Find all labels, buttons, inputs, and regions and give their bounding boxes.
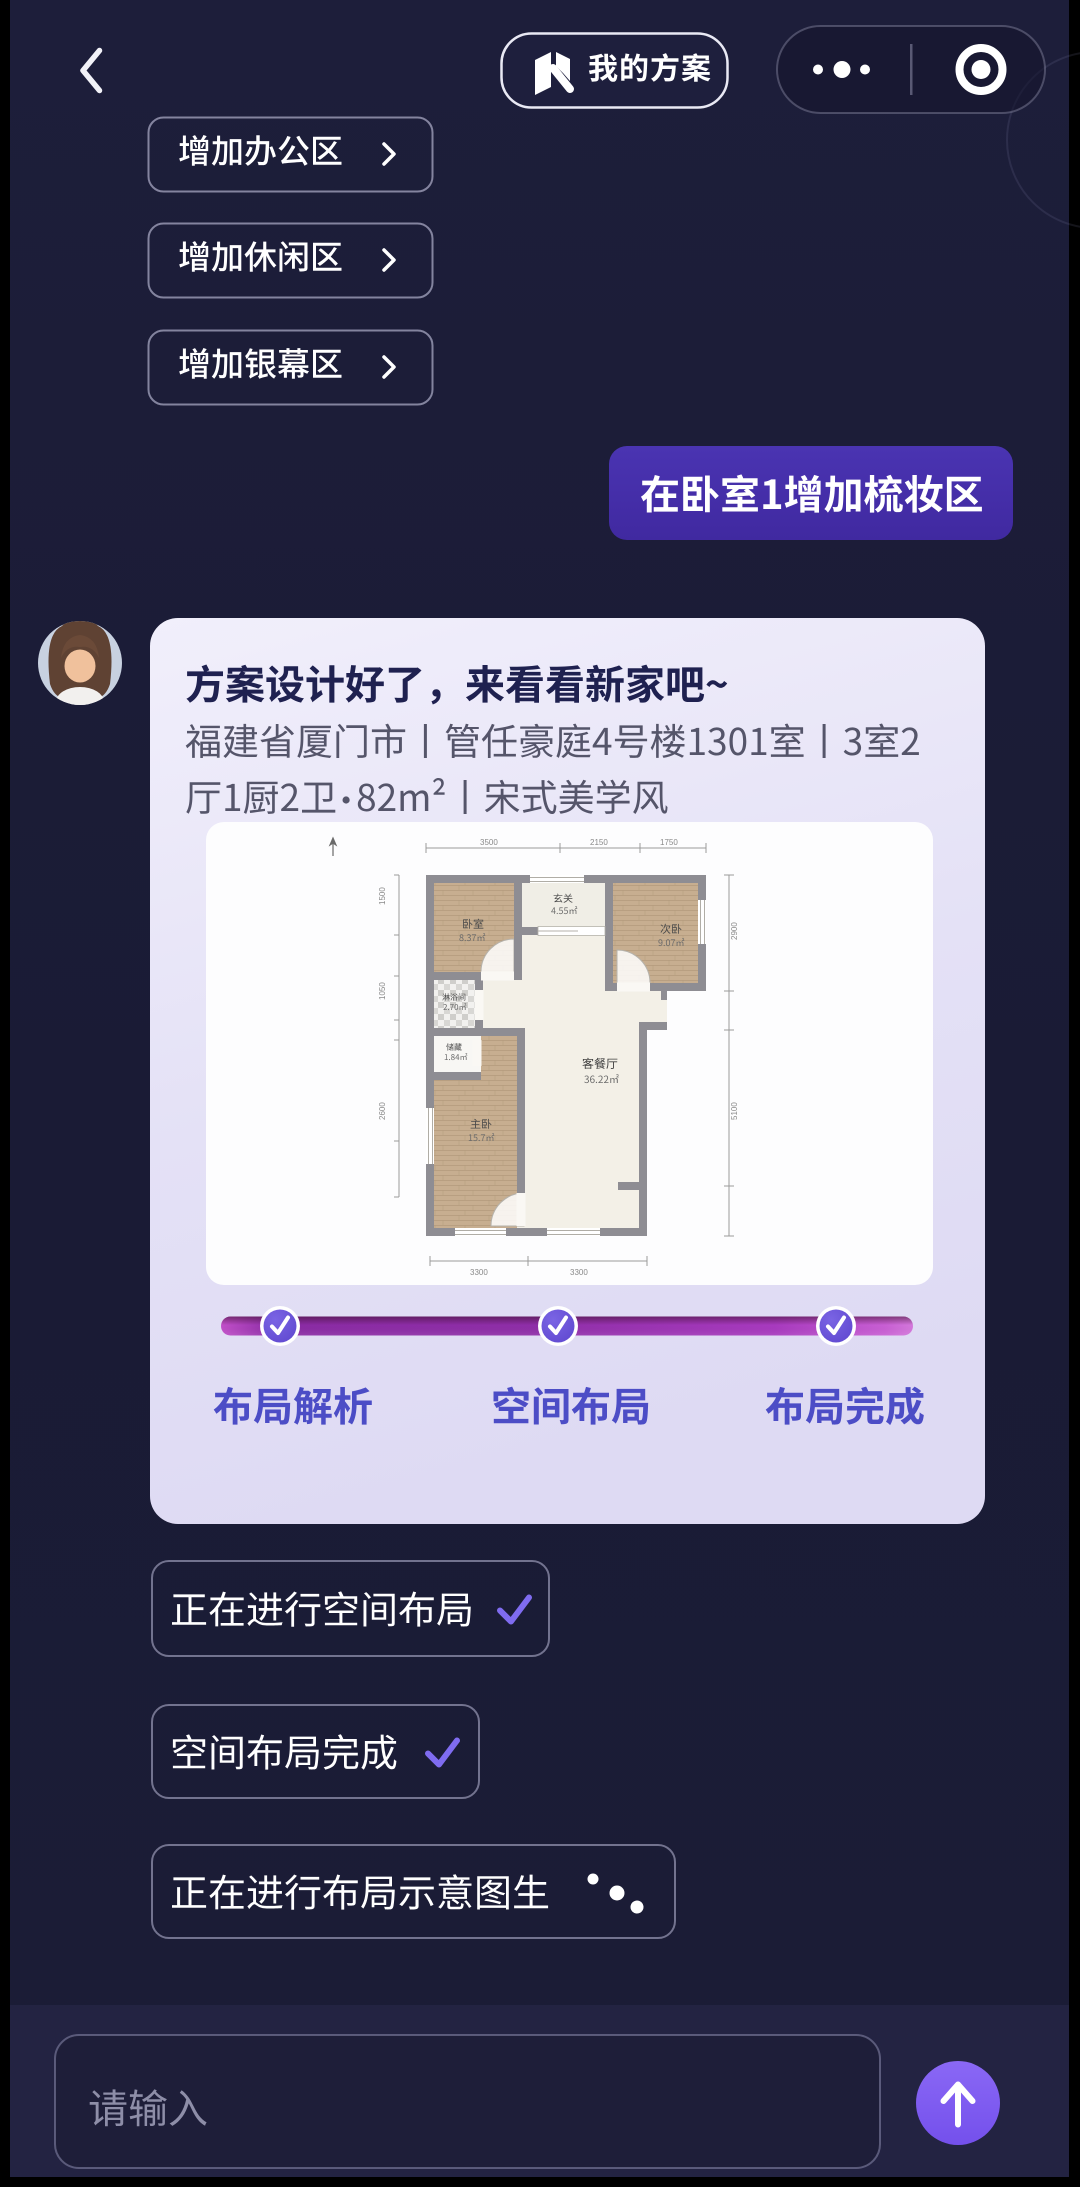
svg-text:1750: 1750 [660,838,678,847]
svg-text:1500: 1500 [378,887,387,905]
svg-text:2150: 2150 [590,838,608,847]
svg-text:2600: 2600 [378,1102,387,1120]
svg-text:3300: 3300 [470,1268,488,1277]
svg-text:1050: 1050 [378,982,387,1000]
svg-text:2900: 2900 [730,922,739,940]
svg-text:5100: 5100 [730,1102,739,1120]
svg-text:3500: 3500 [480,838,498,847]
svg-text:3300: 3300 [570,1268,588,1277]
